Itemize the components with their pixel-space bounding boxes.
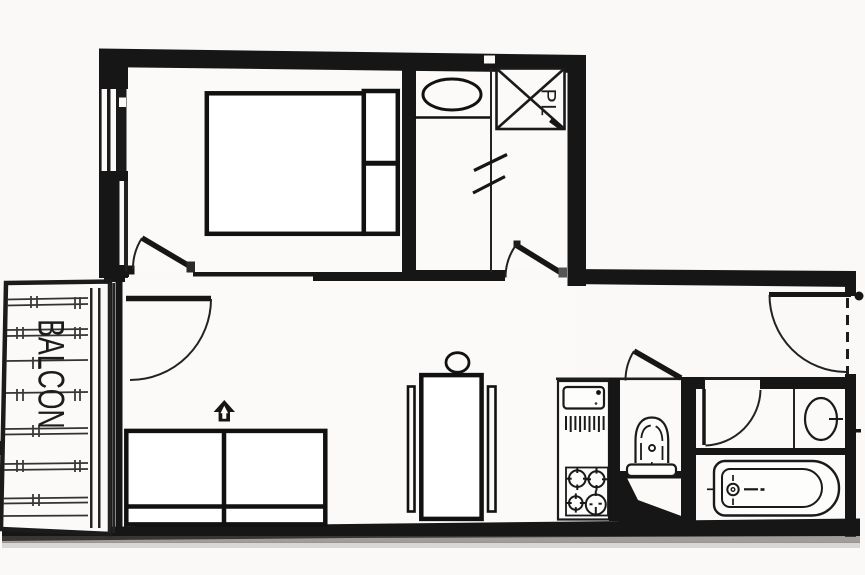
svg-text:PL: PL <box>537 89 560 118</box>
svg-text:BALCON: BALCON <box>30 319 71 428</box>
